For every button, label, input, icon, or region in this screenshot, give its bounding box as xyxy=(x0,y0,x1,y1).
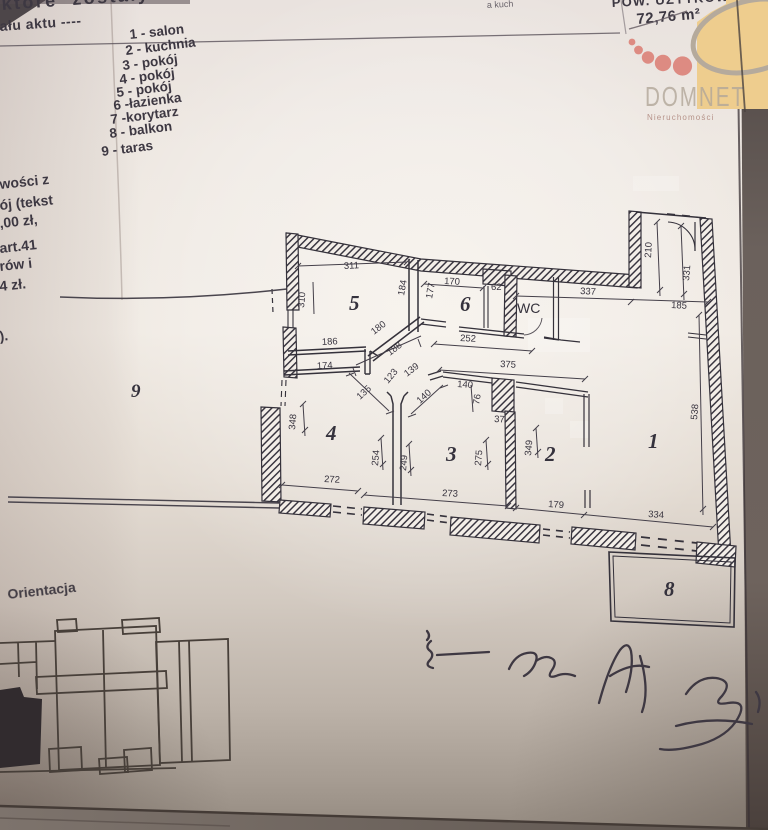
svg-text:9: 9 xyxy=(131,381,141,402)
svg-text:rów i: rów i xyxy=(0,255,33,274)
svg-text:174: 174 xyxy=(317,360,333,372)
svg-text:252: 252 xyxy=(460,333,476,345)
svg-text:337: 337 xyxy=(580,286,596,298)
svg-text:170: 170 xyxy=(444,276,460,288)
svg-text:a kuch: a kuch xyxy=(487,0,514,10)
svg-text:DOMNET: DOMNET xyxy=(645,82,746,113)
svg-text:210: 210 xyxy=(643,242,655,258)
svg-text:275: 275 xyxy=(473,450,485,467)
svg-text:348: 348 xyxy=(287,414,299,431)
svg-text:1: 1 xyxy=(648,429,659,453)
svg-text:538: 538 xyxy=(689,404,701,421)
svg-text:62: 62 xyxy=(491,282,502,293)
svg-text:249: 249 xyxy=(398,455,410,472)
svg-text:37: 37 xyxy=(494,414,505,426)
svg-text:2: 2 xyxy=(544,442,556,466)
svg-text:76: 76 xyxy=(471,393,484,405)
svg-text:6: 6 xyxy=(460,292,471,316)
svg-text:185: 185 xyxy=(671,300,687,312)
svg-text:272: 272 xyxy=(324,474,340,486)
svg-text:179: 179 xyxy=(548,499,565,511)
svg-text:311: 311 xyxy=(344,260,360,272)
svg-text:140: 140 xyxy=(457,379,474,391)
svg-text:8: 8 xyxy=(664,577,675,601)
svg-text:334: 334 xyxy=(648,509,665,521)
svg-text:3: 3 xyxy=(445,442,457,466)
svg-text:186: 186 xyxy=(322,336,338,348)
svg-text:331: 331 xyxy=(681,265,693,282)
svg-text:349: 349 xyxy=(523,440,535,457)
svg-text:273: 273 xyxy=(442,488,458,500)
svg-text:5: 5 xyxy=(349,291,360,315)
svg-text:WC: WC xyxy=(517,300,540,316)
svg-text:375: 375 xyxy=(500,359,516,371)
svg-text:Nieruchomości: Nieruchomości xyxy=(647,113,715,122)
svg-text:4 zł.: 4 zł. xyxy=(0,275,27,294)
svg-text:4: 4 xyxy=(325,421,337,445)
svg-text:254: 254 xyxy=(370,450,382,467)
svg-text:310: 310 xyxy=(296,292,308,309)
